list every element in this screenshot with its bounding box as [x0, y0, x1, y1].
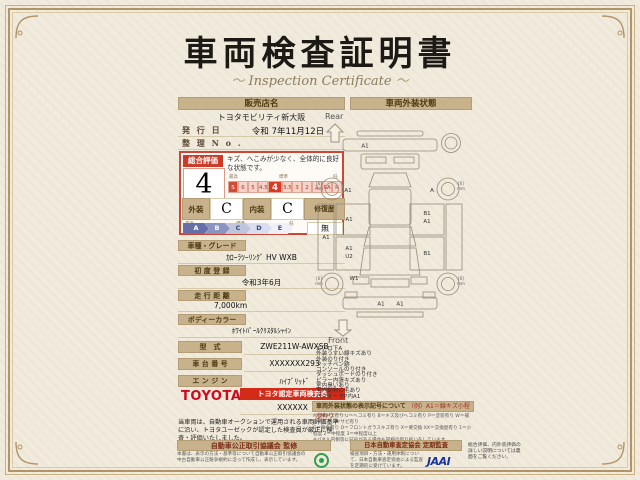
- mark-right-rear-door-a: B1: [423, 211, 430, 217]
- tire-depth-unit: mm: [315, 281, 323, 286]
- scale-cell: 5: [248, 181, 258, 193]
- rear-label: Rear: [325, 112, 343, 121]
- corner-ornament: [14, 440, 40, 466]
- page-title: 車両検査証明書: [0, 26, 640, 75]
- scale-cell-selected: 4: [268, 181, 282, 193]
- scale-cell: 6: [238, 181, 248, 193]
- fair-trade-title: 自動車公正取引協議会 監修: [177, 440, 331, 451]
- page-subtitle: Inspection Certificate: [0, 70, 640, 89]
- serial-label: 整 理 N o .: [182, 138, 243, 149]
- mark-right-rear-door-b: A1: [423, 219, 430, 225]
- jaai-box: 日本自動車査定協会 定期監査 検査項目・方法・運用体制について、日本自動車査定協…: [350, 440, 462, 468]
- mark-left-rear-wheel: A1: [344, 188, 351, 194]
- tire-depth-unit: mm: [315, 186, 323, 191]
- fair-trade-text: 本書は、表示の方法・基準等について自動車公正取引協議会の中古自動車公正競争規約に…: [177, 452, 309, 464]
- fair-trade-box: 自動車公正取引協議会 監修 本書は、表示の方法・基準等について自動車公正取引協議…: [177, 440, 331, 468]
- jaai-text: 検査項目・方法・運用体制について、日本自動車査定協会による監査を定期的に受けてい…: [350, 452, 424, 470]
- jaai-logo: JAAI: [427, 455, 450, 468]
- front-arrow-icon: [334, 319, 352, 337]
- overall-eval-badge: 総合評価: [183, 155, 223, 167]
- tire-depth-unit: mm: [457, 281, 465, 286]
- exterior-condition-header: 車両外装状態: [350, 97, 472, 110]
- legend-line: A＝線キズ有り U＝ヘコミ有り B＝キズ及びヘコミ有り P＝塗装有り W＝補修跡…: [313, 414, 473, 426]
- scale-cell: 3: [292, 181, 302, 193]
- exterior-grade: C: [210, 198, 243, 220]
- spec-label-model-grade: 車種・グレード: [178, 240, 246, 251]
- interior-grade: C: [271, 198, 304, 220]
- fair-trade-logo: [314, 453, 329, 468]
- mark-front-bumper-b: A1: [396, 302, 403, 308]
- scale-cell: S: [228, 181, 238, 193]
- mark-front-left: W1: [350, 276, 359, 282]
- overall-score: 4: [183, 168, 225, 199]
- legend-title: 車両外装状態の表示記号について: [316, 403, 406, 410]
- certificate-page: 車両検査証明書 Inspection Certificate 販売店名 トヨタモ…: [0, 0, 640, 480]
- condition-notes: エアロ下A 外装うすい線キズあり 外装のり付き タッチペン跡 コンソールのり付き…: [316, 347, 471, 400]
- spec-label-body-color: ボディーカラー: [178, 314, 246, 325]
- field-label-chassis-no: 車 台 番 号: [178, 358, 242, 370]
- mark-left-front-door-b: U2: [345, 254, 353, 260]
- field-label-engine: エ ン ジ ン: [178, 375, 242, 387]
- mark-left-fender: A1: [322, 235, 329, 241]
- scale-cell: 4.5: [258, 181, 268, 193]
- interior-label: 内装: [243, 198, 271, 220]
- right-panel: 車両外装状態 Rear: [312, 95, 474, 440]
- car-condition-diagram: A1 A1 A A1 A1 A1 U2 B1 A1 B1 W1 A1 A1 [6…: [315, 129, 465, 319]
- field-label-model-code: 型 式: [178, 341, 242, 353]
- mark-right-rear-wheel: A: [430, 188, 434, 194]
- scale-label-mid: 標準: [279, 174, 288, 180]
- legend-line: C＝腐食有り O＝フロントガラスキズ有り X＝要交換 XX＝交換歴有り 1＝小程…: [313, 426, 473, 438]
- scale-cell: 3.5: [282, 181, 292, 193]
- mark-right-front-door: B1: [423, 251, 430, 257]
- issue-date-label: 発 行 日: [182, 125, 222, 136]
- toyota-logo: TOYOTA: [181, 389, 241, 404]
- mark-left-rear-door: A1: [345, 217, 352, 223]
- mark-left-front-door-a: A1: [345, 246, 352, 252]
- back-page-note: 総合評価、内外装評価の詳しい説明については裏面をご覧ください。: [468, 443, 524, 462]
- spec-label-mileage: 走 行 距 離: [178, 290, 246, 301]
- jaai-title: 日本自動車査定協会 定期監査: [350, 440, 462, 451]
- grade-cell: A: [183, 223, 209, 234]
- mark-front-bumper-a: A1: [377, 302, 384, 308]
- front-label: Front: [328, 336, 348, 345]
- note-item: 右クオータP内A1: [316, 395, 471, 400]
- exterior-grade-scale: A B C D E: [183, 223, 293, 234]
- mark-rear-bumper: A1: [361, 144, 368, 150]
- spec-label-first-registration: 初 度 登 録: [178, 265, 246, 276]
- tire-depth-unit: mm: [457, 186, 465, 191]
- legend-header: 車両外装状態の表示記号について （例）A1＝線キズ小程度有り: [312, 401, 474, 412]
- scale-cell: 2: [302, 181, 312, 193]
- scale-label-high: 最高: [229, 174, 238, 180]
- corner-ornament: [600, 440, 626, 466]
- exterior-label: 外装: [182, 198, 210, 220]
